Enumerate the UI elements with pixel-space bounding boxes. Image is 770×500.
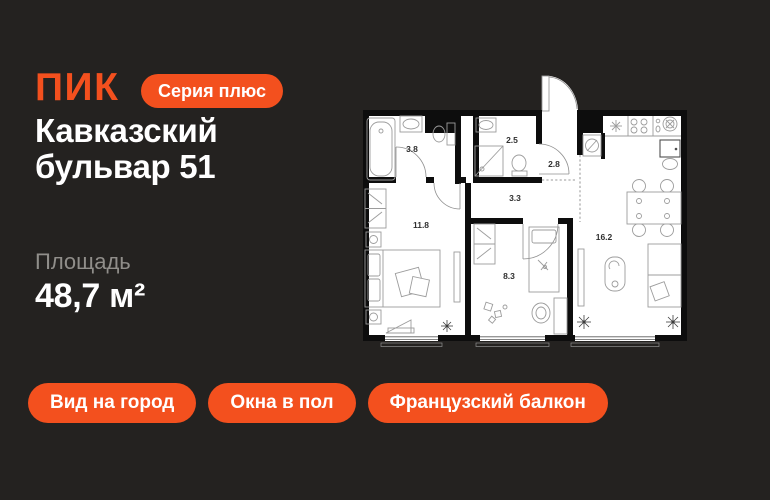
sofa [648, 244, 681, 307]
pik-logo[interactable]: ПИК [35, 68, 119, 107]
promo-card: ПИК Серия плюс Кавказский бульвар 51 Пло… [0, 0, 770, 500]
room-area-label: 3.8 [406, 144, 418, 154]
series-plus-badge[interactable]: Серия плюс [141, 74, 283, 108]
dining-table [627, 192, 681, 224]
area-value: 48,7 м² [35, 277, 145, 316]
feature-tags: Вид на город Окна в пол Французский балк… [28, 383, 608, 423]
room-area-label: 11.8 [413, 220, 429, 230]
feature-tag-french-balcony[interactable]: Французский балкон [368, 383, 608, 423]
area-label: Площадь [35, 249, 131, 275]
room-area-label: 3.3 [509, 193, 521, 203]
room-area-label: 2.8 [548, 159, 560, 169]
room-area-label: 16.2 [596, 232, 613, 242]
feature-tag-city-view[interactable]: Вид на город [28, 383, 196, 423]
french-balcony [381, 343, 659, 347]
plant-icon [577, 315, 591, 329]
room-area-label: 2.5 [506, 135, 518, 145]
project-title: Кавказский бульвар 51 [35, 113, 293, 186]
floor-plan: 3.8 2.5 2.8 3.3 11.8 8.3 16.2 [348, 60, 713, 350]
plant-icon-2 [666, 315, 680, 329]
feature-tag-floor-windows[interactable]: Окна в пол [208, 383, 355, 423]
room-area-label: 8.3 [503, 271, 515, 281]
